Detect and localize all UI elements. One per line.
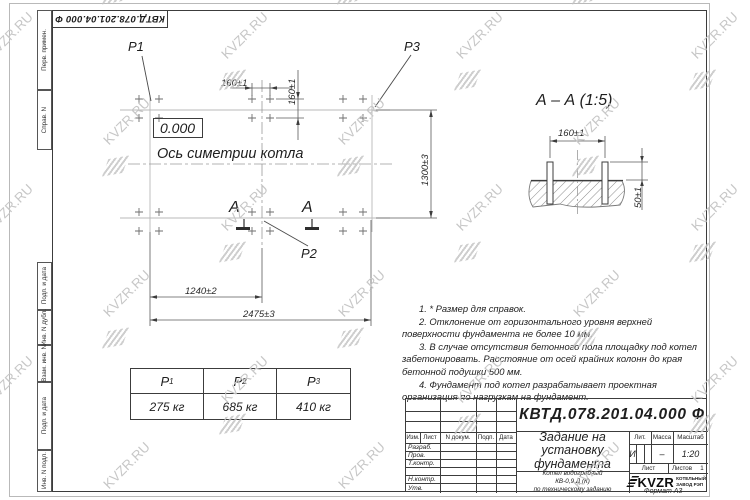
- tb-product: Котел водогрейный КВ-0,9 Д (К) по технич…: [516, 471, 629, 493]
- plan-outline: [120, 95, 390, 232]
- tb-col-izm: Изм.: [406, 432, 420, 443]
- tb-col-list: Лист: [420, 432, 440, 443]
- tb-col-ndoc: N докум.: [440, 432, 476, 443]
- tb-col-podp: Подп.: [476, 432, 496, 443]
- load-point-p3-label: P3: [404, 39, 420, 54]
- note-3: 3. В случае отсутствия бетонного пола пл…: [402, 341, 707, 379]
- boiler-axis-label: Ось симетрии котла: [157, 146, 303, 162]
- loads-value-p2: 685 кг: [204, 394, 277, 419]
- loads-value-p1: 275 кг: [131, 394, 204, 419]
- drawing-sheet: КВТД.078.201.04.000 Ф Перв. примен. Спра…: [0, 0, 750, 500]
- title-block: Изм. Лист N докум. Подп. Дата Разраб. Пр…: [405, 398, 707, 492]
- concrete-pad: [529, 181, 625, 207]
- load-point-p1-label: P1: [128, 39, 144, 54]
- plan-centerlines: [128, 80, 395, 248]
- tb-mass-header: Масса: [651, 431, 673, 444]
- tb-scale-value: 1:20: [673, 444, 708, 463]
- section-dim-height: 50±1: [633, 187, 644, 208]
- section-letter-left: А: [229, 199, 240, 217]
- dim-inner-length: 1240±2: [185, 286, 217, 297]
- company-name: КОТЕЛЬНЫЙ ЗАВОД РЭП: [676, 476, 706, 487]
- tb-row-utv: Утв.: [408, 485, 423, 492]
- loads-header-p2: P2: [204, 369, 277, 394]
- loads-table: P1 P2 P3 275 кг 685 кг 410 кг: [130, 368, 351, 420]
- dim-outer-length: 2475±3: [243, 309, 275, 320]
- anchor-bolt-right: [602, 162, 608, 204]
- tb-row-razrab: Разраб.: [408, 444, 432, 451]
- format-label: Формат А3: [644, 488, 682, 495]
- dim-bolt-pitch-h: 160±1: [221, 78, 247, 89]
- section-view: [529, 150, 625, 215]
- section-cut-marks: [236, 219, 319, 229]
- tb-title: Задание на установку фундамента: [516, 431, 629, 471]
- tb-lit-header: Лит.: [629, 431, 651, 444]
- tb-sheet-label: Лист: [629, 463, 668, 473]
- note-2: 2. Отклонение от горизонтального уровня …: [402, 316, 707, 341]
- tb-sheets-value: 1: [696, 463, 708, 473]
- loads-value-p3: 410 кг: [277, 394, 350, 419]
- tb-col-data: Дата: [496, 432, 516, 443]
- anchor-bolt-left: [547, 162, 553, 204]
- tb-row-prov: Пров.: [408, 452, 425, 459]
- note-1: 1. * Размер для справок.: [402, 303, 707, 316]
- dim-bolt-pitch-v: 160±1: [287, 79, 298, 105]
- section-view-title: А – А (1:5): [536, 92, 612, 110]
- section-letter-right: А: [302, 199, 313, 217]
- technical-notes: 1. * Размер для справок. 2. Отклонение о…: [402, 303, 707, 404]
- loads-header-p3: P3: [277, 369, 350, 394]
- tb-row-nkontr: Н.контр.: [408, 476, 436, 483]
- tb-mass-value: –: [651, 444, 673, 463]
- tb-row-tkontr: Т.контр.: [408, 460, 435, 467]
- tb-sheets-label: Листов: [668, 463, 696, 473]
- tb-scale-header: Масштаб: [673, 431, 708, 444]
- level-mark: 0.000: [160, 120, 195, 136]
- tb-lit-value: И: [629, 444, 636, 463]
- dim-foundation-width: 1300±3: [420, 154, 431, 186]
- load-point-p2-label: P2: [301, 246, 317, 261]
- anchor-bolt-crosses: [135, 95, 367, 235]
- loads-header-p1: P1: [131, 369, 204, 394]
- section-dim-width: 160±1: [558, 128, 584, 139]
- tb-doc-number: КВТД.078.201.04.000 Ф: [516, 399, 708, 431]
